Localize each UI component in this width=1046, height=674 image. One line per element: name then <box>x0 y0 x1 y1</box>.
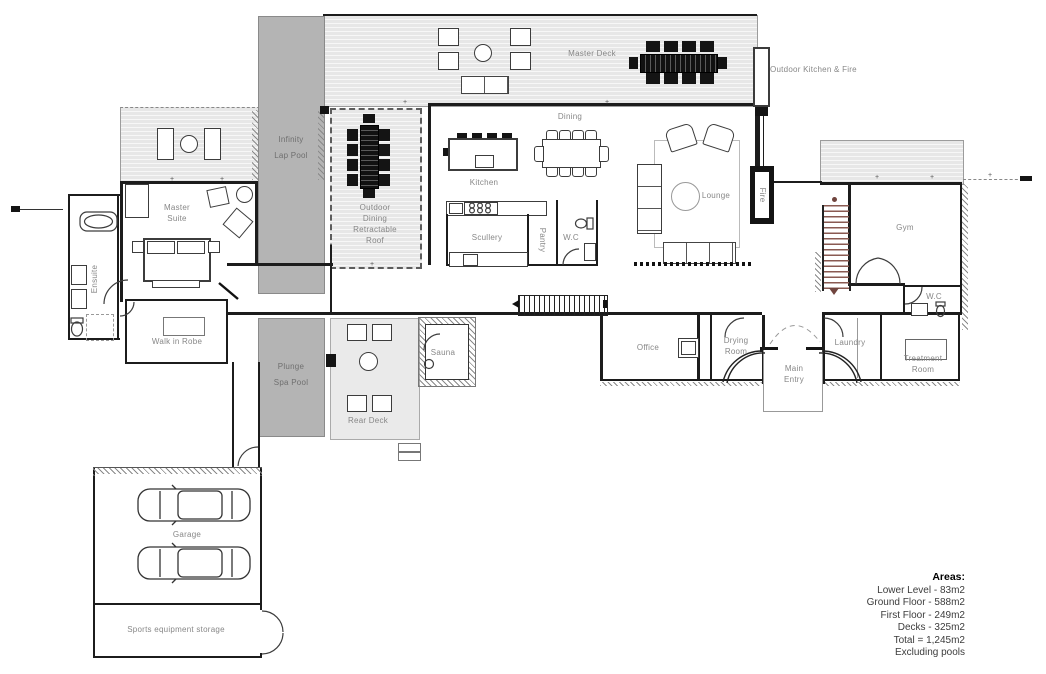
door-leaf <box>219 283 238 299</box>
wall <box>428 103 431 265</box>
gym-deck-area <box>820 140 964 185</box>
datum-line-right <box>963 179 1023 180</box>
label-laundry: Laundry <box>825 338 875 348</box>
wall <box>68 194 70 340</box>
glass-wall-dashes <box>634 262 754 266</box>
outdoor-chair <box>682 73 696 84</box>
label-office: Office <box>623 343 673 353</box>
scullery-sink <box>463 254 478 266</box>
dining-table <box>542 139 601 168</box>
wall <box>428 103 758 106</box>
outdoor-chair <box>347 144 358 156</box>
scullery-bench <box>449 252 528 267</box>
outdoor-chair <box>664 41 678 52</box>
areas-line: Total = 1,245m2 <box>760 635 965 648</box>
deck-chair <box>347 395 367 412</box>
robe-island <box>163 317 205 336</box>
wall <box>255 181 258 264</box>
wc-basin <box>911 303 928 316</box>
dining-chair <box>585 167 597 177</box>
deck-sofa <box>461 76 509 94</box>
outdoor-chair <box>347 159 358 171</box>
areas-summary: Areas: Lower Level - 83m2 Ground Floor -… <box>760 571 965 660</box>
wall <box>903 285 905 315</box>
curved-wall <box>822 351 861 382</box>
label-gym: Gym <box>885 223 925 233</box>
floor-plan: + + + + + + + + <box>0 0 1046 674</box>
stairs-tick <box>603 300 607 308</box>
label-infinity-pool: Infinity Lap Pool <box>261 132 321 164</box>
label-dining: Dining <box>545 112 595 122</box>
wall <box>232 362 234 467</box>
dining-chair <box>559 130 571 140</box>
stairs-arrow-left <box>512 300 519 308</box>
door-arc <box>878 258 900 284</box>
stair-hatch <box>815 252 821 292</box>
wall <box>596 200 598 266</box>
label-wc-gym: W.C <box>919 292 949 302</box>
kitchen-stool <box>502 133 512 138</box>
door-arc <box>238 447 258 466</box>
door-arc <box>262 633 283 654</box>
label-lounge: Lounge <box>691 191 741 201</box>
wall <box>880 315 882 381</box>
island-sink <box>475 155 494 168</box>
outdoor-chair <box>646 73 660 84</box>
outdoor-chair <box>646 41 660 52</box>
wall <box>227 312 762 315</box>
wall <box>330 245 332 315</box>
deck-step <box>398 452 421 461</box>
label-wc-main: W.C <box>556 233 586 243</box>
deck-chair <box>510 52 531 70</box>
outdoor-chair <box>379 174 390 186</box>
areas-line: Decks - 325m2 <box>760 622 965 635</box>
deck-chair <box>372 324 392 341</box>
wall <box>120 181 123 302</box>
label-treatment-room: Treatment Room <box>893 353 953 375</box>
label-master-suite: Master Suite <box>147 202 207 224</box>
label-garage: Garage <box>162 530 212 540</box>
label-main-entry: Main Entry <box>769 363 819 385</box>
label-fire: Fire <box>757 175 767 215</box>
deck-tick: + <box>605 99 609 106</box>
deck-tick: + <box>220 176 224 183</box>
areas-line: Lower Level - 83m2 <box>760 585 965 598</box>
areas-title: Areas: <box>760 571 965 584</box>
outdoor-chair <box>379 144 390 156</box>
outdoor-chair <box>379 129 390 141</box>
datum-tick <box>11 206 20 212</box>
wall-hatch <box>822 382 960 386</box>
wall <box>822 312 962 315</box>
label-walk-in-robe: Walk in Robe <box>137 337 217 347</box>
vanity-basin <box>71 265 87 285</box>
flue-line <box>763 116 764 168</box>
deck-tick: + <box>170 176 174 183</box>
deck-tick: + <box>370 261 374 268</box>
wardrobe <box>125 184 149 218</box>
wall <box>446 214 448 266</box>
outdoor-chair <box>347 174 358 186</box>
kitchen-stool <box>487 133 497 138</box>
outdoor-chair <box>379 159 390 171</box>
label-outdoor-dining: Outdoor Dining Retractable Roof <box>335 202 415 246</box>
wall <box>226 299 228 364</box>
pool-corner-marker <box>320 106 329 114</box>
dining-chair <box>572 167 584 177</box>
bedside-table <box>208 241 220 253</box>
wall <box>227 263 333 266</box>
dining-chair <box>585 130 597 140</box>
outdoor-chair <box>700 41 714 52</box>
armchair <box>206 186 229 208</box>
label-sauna: Sauna <box>423 348 463 358</box>
toilet-icon <box>71 318 83 336</box>
label-kitchen: Kitchen <box>459 178 509 188</box>
label-pantry: Pantry <box>537 220 547 260</box>
areas-line: Excluding pools <box>760 647 965 660</box>
wall <box>125 299 127 364</box>
wall-hatch <box>600 382 762 386</box>
bathtub-basin <box>85 215 113 228</box>
dining-chair <box>546 167 558 177</box>
lounge-sofa <box>637 164 662 234</box>
label-drying-room: Drying Room <box>711 335 761 357</box>
dining-chair <box>534 146 544 162</box>
wall <box>117 194 119 340</box>
deck-tick: + <box>988 172 992 179</box>
spa-marker <box>326 354 336 367</box>
lounge-bench <box>663 242 736 264</box>
wc-basin <box>584 243 596 261</box>
deck-round-table <box>359 352 378 371</box>
wall <box>125 362 228 364</box>
dining-chair <box>599 146 609 162</box>
door-arc <box>856 258 878 284</box>
shower <box>86 314 114 341</box>
label-master-deck: Master Deck <box>552 49 632 59</box>
gym-stairs <box>822 205 851 291</box>
outdoor-dining-table <box>360 125 379 189</box>
outdoor-chair <box>682 41 696 52</box>
wall <box>773 181 822 183</box>
wall <box>903 285 962 287</box>
door-arc <box>120 302 134 316</box>
label-ensuite: Ensuite <box>90 257 100 301</box>
garage-wall <box>260 467 262 610</box>
deck-chair <box>157 128 174 160</box>
deck-chair <box>372 395 392 412</box>
deck-chair <box>510 28 531 46</box>
outdoor-chair <box>664 73 678 84</box>
stairs-arrow-down <box>829 288 839 295</box>
corridor-stairs <box>518 295 608 316</box>
dining-chair <box>572 130 584 140</box>
deck-chair <box>438 28 459 46</box>
fridge <box>449 203 463 214</box>
laundry-bench-line <box>857 318 858 378</box>
wall <box>68 194 120 196</box>
stairs-newel-dot <box>832 197 837 202</box>
bathtub <box>80 212 117 231</box>
garage-wall <box>93 656 262 658</box>
pillow <box>177 241 205 254</box>
outdoor-chair <box>347 129 358 141</box>
outdoor-chair <box>700 73 714 84</box>
wall <box>958 315 960 381</box>
cooktop <box>464 202 498 215</box>
kitchen-stool <box>472 133 482 138</box>
datum-line-left <box>13 209 63 210</box>
outdoor-dining-table <box>640 54 718 73</box>
dining-chair <box>559 167 571 177</box>
outdoor-chair <box>718 57 727 69</box>
outdoor-kitchen-bench <box>753 47 770 107</box>
deck-chair <box>438 52 459 70</box>
toilet-icon <box>576 218 594 229</box>
pool-ladder-hatch <box>252 110 258 180</box>
armchair <box>223 208 254 239</box>
label-outdoor-kitchen-fire: Outdoor Kitchen & Fire <box>770 65 880 75</box>
kitchen-stool <box>457 133 467 138</box>
deck-tick: + <box>403 99 407 106</box>
deck-chair <box>347 324 367 341</box>
deck-chair <box>204 128 221 160</box>
door-arc <box>563 249 579 265</box>
bed-bench <box>152 280 200 288</box>
areas-line: Ground Floor - 588m2 <box>760 597 965 610</box>
wall <box>600 315 603 381</box>
wall <box>848 283 905 286</box>
wall <box>125 299 228 301</box>
label-scullery: Scullery <box>462 233 512 243</box>
side-table-round <box>236 186 253 203</box>
door-arc <box>824 318 843 337</box>
pillow <box>147 241 175 254</box>
wall <box>600 379 762 381</box>
deck-tick: + <box>875 174 879 181</box>
vanity-basin <box>71 289 87 309</box>
wall <box>323 14 757 16</box>
office-chair <box>681 341 696 355</box>
door-arc <box>262 611 283 632</box>
deck-step <box>398 443 421 452</box>
datum-tick <box>1020 176 1032 181</box>
wall <box>822 379 960 381</box>
bedside-table <box>132 241 144 253</box>
deck-tick: + <box>930 174 934 181</box>
wall-hatch <box>962 183 968 330</box>
deck-round-table <box>180 135 198 153</box>
deck-round-table <box>474 44 492 62</box>
areas-line: First Floor - 249m2 <box>760 610 965 623</box>
outdoor-chair <box>363 189 375 198</box>
label-rear-deck: Rear Deck <box>338 416 398 426</box>
label-sports-storage: Sports equipment storage <box>116 625 236 635</box>
dining-chair <box>546 130 558 140</box>
wall <box>258 362 260 467</box>
wall <box>820 182 962 185</box>
island-tab <box>443 148 448 156</box>
outdoor-chair <box>363 114 375 123</box>
flue-line <box>758 116 760 168</box>
entry-dashed-arc <box>770 325 820 344</box>
label-plunge-pool: Plunge Spa Pool <box>261 359 321 391</box>
